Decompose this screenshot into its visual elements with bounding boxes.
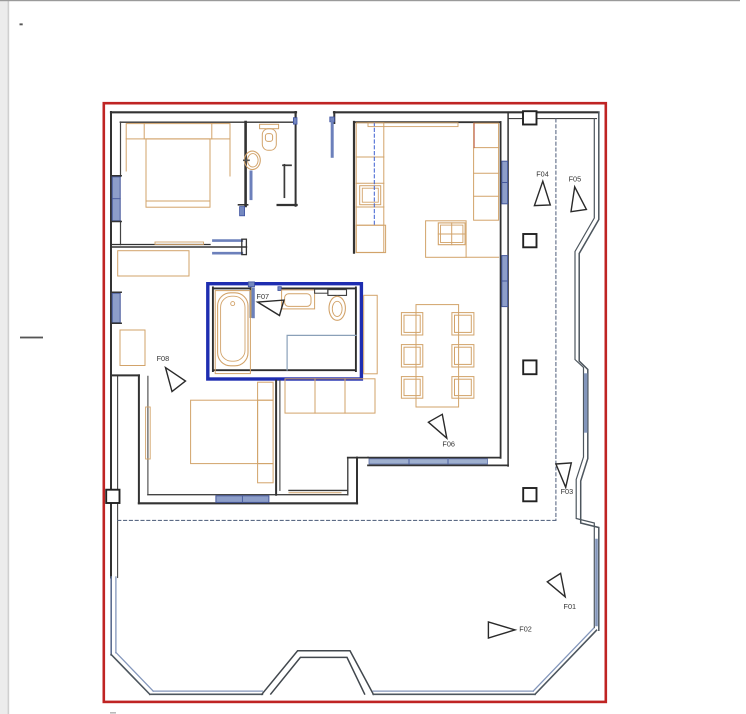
svg-text:F03: F03 [561,487,574,496]
svg-text:F04: F04 [536,170,549,179]
svg-text:F08: F08 [157,354,170,363]
svg-text:F01: F01 [564,602,577,611]
svg-text:F06: F06 [442,440,455,449]
svg-text:F07: F07 [257,292,270,301]
svg-text:F02: F02 [519,625,532,634]
svg-text:F05: F05 [569,175,582,184]
